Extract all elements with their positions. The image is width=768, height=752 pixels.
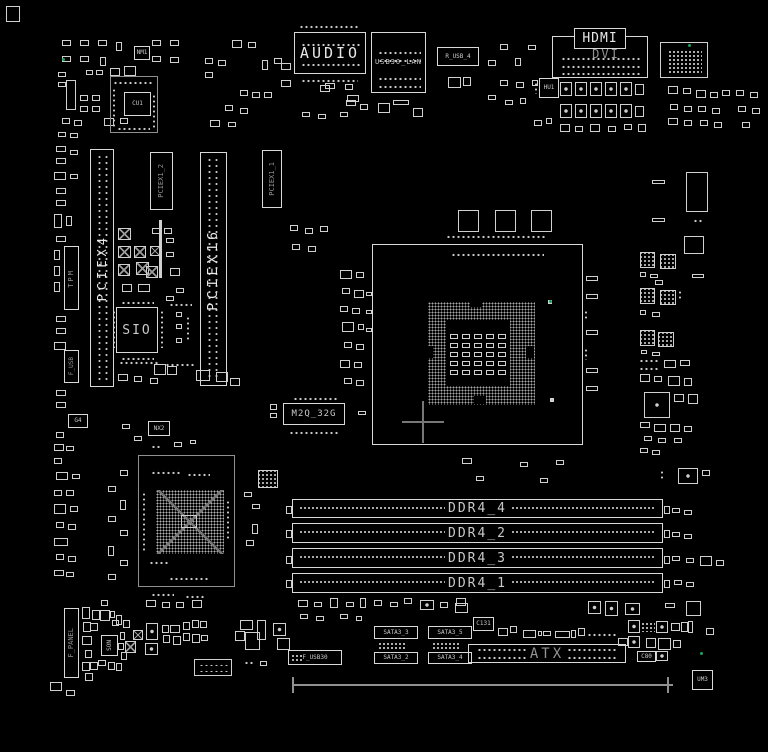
component-pad: [712, 108, 720, 114]
component-pad: [121, 652, 127, 660]
component-pad: [183, 633, 190, 641]
component-pad: [122, 424, 130, 429]
component-pad: [264, 92, 272, 98]
component-pad: [330, 598, 338, 608]
component-pad: [116, 126, 150, 130]
component-pad: [56, 390, 66, 396]
component-pad: [112, 88, 116, 128]
component-pad: [198, 669, 228, 672]
component-pad: [640, 374, 650, 382]
component-pad: [194, 659, 232, 676]
component-pad: [534, 120, 542, 126]
component-pad: [54, 458, 62, 464]
component-pad: [118, 246, 131, 258]
component-pad: [686, 558, 694, 563]
component-pad: [66, 690, 75, 696]
pciex1-2-slot[interactable]: PCIEX1_2: [150, 152, 173, 210]
component-pad: [92, 610, 100, 620]
component-pad: [98, 660, 106, 666]
component-pad: [346, 100, 356, 106]
c80-component[interactable]: C80: [637, 651, 656, 662]
component-pad: [686, 172, 708, 212]
component-pad: [118, 360, 158, 365]
component-pad: [240, 108, 248, 114]
component-pad: [176, 338, 182, 343]
component-pad: [176, 602, 184, 608]
component-pad: [235, 631, 245, 641]
component-pad: [456, 598, 466, 606]
component-pad: [167, 366, 177, 375]
component-pad: [116, 42, 122, 51]
rear-usb-connector[interactable]: R_USB_4: [437, 47, 479, 66]
component-pad: [684, 106, 692, 112]
pciex4-slot[interactable]: PCIEX4: [90, 149, 114, 387]
c131-component[interactable]: C131: [473, 617, 494, 631]
component-pad: [654, 376, 662, 382]
component-pad: [54, 538, 68, 546]
component-pad: [134, 436, 142, 441]
component-pad: [252, 504, 260, 509]
component-pad: [200, 621, 207, 628]
component-pad: [183, 622, 190, 630]
component-pad: [316, 616, 324, 621]
component-pad: [560, 104, 572, 118]
component-pad: [560, 82, 572, 96]
component-pad: [150, 444, 160, 448]
sata-port-5[interactable]: SATA3_5: [428, 626, 472, 639]
component-pad: [345, 84, 353, 90]
component-pad: [54, 282, 60, 292]
component-pad: [340, 614, 348, 619]
component-pad: [166, 296, 174, 301]
component-pad: [54, 490, 62, 496]
component-pad: [644, 436, 652, 441]
component-pad: [555, 631, 570, 638]
component-pad: [300, 614, 308, 619]
component-pad: [635, 106, 644, 117]
nm1-chip[interactable]: NM1: [134, 46, 150, 60]
component-pad: [664, 360, 676, 368]
component-pad: [98, 40, 107, 46]
dimm-slot-ddr4-4[interactable]: DDR4_4: [292, 499, 663, 518]
component-pad: [270, 413, 277, 418]
dimm-label: DDR4_4: [445, 502, 510, 515]
component-pad: [344, 378, 352, 384]
component-pad: [281, 63, 291, 70]
component-pad: [404, 598, 412, 604]
component-pad: [56, 432, 64, 438]
component-pad: [116, 663, 122, 671]
component-pad: [290, 225, 298, 231]
component-pad: [588, 601, 601, 614]
g4-chip[interactable]: G4: [68, 414, 88, 428]
component-pad: [652, 180, 665, 184]
component-pad: [262, 60, 268, 70]
component-pad: [314, 602, 322, 607]
component-pad: [390, 602, 398, 607]
component-pad: [325, 83, 335, 89]
component-pad: [620, 82, 632, 96]
component-pad: [628, 636, 640, 648]
component-pad: [684, 120, 692, 126]
component-pad: [56, 554, 64, 560]
component-pad: [146, 623, 158, 640]
cpu-socket[interactable]: [372, 244, 583, 445]
component-pad: [667, 677, 669, 693]
component-pad: [116, 615, 122, 625]
component-pad: [463, 77, 471, 86]
component-pad: [124, 66, 136, 76]
component-pad: [205, 72, 213, 78]
component-pad: [240, 620, 253, 630]
pciex16-slot[interactable]: PCIEX16: [200, 152, 227, 386]
component-pad: [190, 440, 196, 444]
component-pad: [590, 124, 600, 132]
g4-label: G4: [74, 418, 81, 424]
component-pad: [56, 158, 66, 164]
component-pad: [500, 80, 508, 86]
component-pad: [152, 94, 156, 128]
component-pad: [625, 603, 640, 615]
component-pad: [455, 603, 468, 613]
component-pad: [641, 622, 655, 632]
component-pad: [650, 274, 658, 278]
son-label: SON: [107, 640, 113, 651]
component-pad: [664, 556, 670, 564]
component-pad: [476, 476, 484, 481]
f-panel-label: F_PANEL: [68, 628, 75, 658]
component-pad: [257, 620, 266, 640]
component-pad: [176, 312, 182, 317]
component-pad: [134, 376, 142, 382]
component-pad: [586, 386, 598, 391]
component-pad: [516, 82, 524, 88]
pciex1-2-label: PCIEX1_2: [158, 164, 165, 198]
component-pad: [578, 628, 585, 636]
component-pad: [346, 602, 354, 607]
component-pad: [258, 470, 278, 488]
component-pad: [515, 58, 521, 66]
component-pad: [176, 324, 182, 329]
component-pad: [54, 250, 60, 260]
component-pad: [638, 124, 646, 132]
component-pad: [248, 42, 256, 48]
atx-power-connector[interactable]: ATX: [468, 644, 626, 663]
component-pad: [138, 284, 150, 292]
chipset[interactable]: [138, 455, 235, 587]
component-pad: [201, 635, 208, 641]
component-pad: [298, 24, 360, 29]
component-pad: [66, 216, 72, 226]
component-pad: [54, 570, 64, 576]
component-pad: [292, 677, 294, 693]
audio-connector[interactable]: AUDIO: [294, 32, 366, 74]
component-pad: [354, 362, 362, 368]
component-pad: [86, 70, 93, 75]
component-pad: [656, 651, 668, 661]
dimm-label: DDR4_2: [445, 527, 510, 540]
component-pad: [80, 106, 88, 112]
component-pad: [458, 210, 479, 232]
component-pad: [674, 438, 682, 443]
cu1-label: CU1: [132, 101, 143, 107]
component-pad: [320, 226, 328, 232]
component-pad: [85, 673, 93, 681]
component-pad: [358, 411, 366, 415]
component-pad: [605, 104, 617, 118]
component-pad: [638, 366, 660, 370]
nm1-label: NM1: [137, 50, 148, 56]
component-pad: [640, 310, 646, 315]
component-pad: [270, 404, 277, 410]
component-pad: [134, 246, 146, 258]
component-pad: [56, 472, 68, 480]
pciex4-label: PCIEX4: [96, 234, 108, 301]
component-pad: [700, 120, 708, 126]
component-pad: [120, 500, 126, 510]
component-pad: [133, 630, 143, 640]
sata-port-2[interactable]: SATA3_2: [374, 652, 418, 664]
dvi-label: DVI: [584, 46, 628, 62]
component-pad: [145, 643, 158, 655]
component-pad: [164, 228, 172, 234]
component-pad: [505, 100, 513, 105]
hu1-chip[interactable]: HU1: [539, 78, 559, 98]
component-pad: [112, 620, 119, 626]
component-pad: [586, 330, 598, 335]
component-pad: [184, 594, 204, 598]
component-pad: [225, 105, 233, 111]
component-pad: [670, 104, 678, 110]
chipset-bga-grid: [156, 490, 224, 554]
c80-label: C80: [641, 654, 652, 660]
sata-label: SATA3_4: [437, 655, 462, 661]
component-pad: [668, 50, 702, 74]
component-pad: [586, 632, 618, 637]
component-pad: [590, 104, 602, 118]
nx2-chip[interactable]: NX2: [148, 421, 170, 436]
component-pad: [670, 424, 680, 432]
tpm-header[interactable]: TPM: [64, 246, 79, 310]
component-pad: [605, 601, 618, 616]
component-pad: [590, 82, 602, 96]
component-pad: [688, 394, 698, 404]
component-pad: [318, 114, 326, 119]
component-pad: [692, 218, 702, 224]
component-pad: [560, 124, 570, 132]
component-pad: [120, 470, 128, 476]
component-pad: [273, 623, 286, 636]
component-pad: [72, 474, 80, 479]
component-pad: [192, 620, 199, 628]
component-pad: [520, 98, 526, 104]
component-pad: [413, 108, 423, 117]
component-pad: [154, 364, 166, 375]
component-pad: [420, 600, 434, 610]
f-panel-header[interactable]: F_PANEL: [64, 608, 79, 678]
component-pad: [146, 600, 156, 607]
m2-connector[interactable]: M2Q_32G: [283, 403, 345, 425]
component-pad: [342, 322, 354, 332]
component-pad: [112, 80, 152, 84]
component-pad: [320, 85, 330, 92]
component-pad: [608, 126, 616, 132]
cpu-pin-grid: [428, 302, 535, 405]
component-pad: [652, 312, 660, 317]
component-pad: [252, 92, 260, 98]
component-pad: [360, 598, 366, 608]
son-chip[interactable]: SON: [101, 635, 118, 656]
component-pad: [672, 532, 680, 537]
component-pad: [152, 228, 160, 234]
component-pad: [56, 402, 66, 408]
component-pad: [125, 641, 136, 653]
component-pad: [660, 470, 664, 480]
component-pad: [488, 95, 496, 100]
sata-port-4[interactable]: SATA3_4: [428, 652, 472, 664]
component-pad: [664, 530, 670, 538]
sata-label: SATA3_3: [383, 630, 408, 636]
component-pad: [680, 360, 690, 366]
component-pad: [340, 270, 352, 279]
component-pad: [80, 56, 89, 62]
component-pad: [668, 376, 680, 386]
dimm-label: DDR4_1: [445, 577, 510, 590]
component-pad: [56, 328, 66, 334]
component-pad: [150, 592, 174, 596]
component-pad: [108, 486, 116, 492]
component-pad: [640, 288, 655, 304]
component-pad: [556, 460, 564, 465]
f-usb30-header[interactable]: F_USB30: [288, 650, 342, 665]
component-pad: [360, 104, 368, 110]
component-pad: [108, 516, 116, 522]
component-pad: [260, 661, 267, 666]
component-pad: [356, 616, 362, 621]
component-pad: [722, 90, 730, 96]
dimm-slot-ddr4-1[interactable]: DDR4_1: [292, 573, 663, 593]
component-pad: [352, 308, 360, 314]
component-pad: [96, 70, 103, 75]
component-pad: [628, 620, 640, 633]
component-pad: [531, 210, 552, 232]
component-pad: [575, 126, 583, 132]
component-pad: [678, 468, 698, 484]
component-pad: [56, 236, 66, 242]
component-pad: [710, 92, 718, 98]
component-pad: [50, 682, 62, 691]
component-pad: [54, 342, 66, 350]
component-pad: [684, 510, 692, 515]
component-pad: [586, 276, 598, 281]
component-pad: [68, 524, 76, 530]
component-pad: [80, 95, 88, 101]
component-pad: [684, 426, 692, 432]
component-pad: [62, 56, 71, 62]
component-pad: [159, 220, 162, 278]
component-pad: [162, 602, 170, 608]
sata-label: SATA3_5: [437, 630, 462, 636]
component-pad: [495, 210, 516, 232]
component-pad: [500, 44, 508, 50]
sio-chip[interactable]: SIO: [116, 307, 158, 353]
lan-usb-label: USB30_LAN: [375, 59, 422, 66]
component-pad: [70, 150, 78, 155]
um3-chip[interactable]: UM3: [692, 670, 713, 690]
atx-label: ATX: [527, 647, 567, 661]
dimm-slot-ddr4-2[interactable]: DDR4_2: [292, 523, 663, 543]
component-pad: [546, 118, 552, 124]
component-pad: [340, 112, 348, 117]
component-pad: [166, 238, 174, 243]
f-usb-label: F_USB: [69, 357, 75, 375]
component-pad: [354, 290, 364, 298]
component-pad: [300, 78, 358, 83]
component-pad: [498, 628, 508, 636]
dimm-slot-ddr4-3[interactable]: DDR4_3: [292, 548, 663, 568]
component-pad: [605, 82, 617, 96]
sata-port-3[interactable]: SATA3_3: [374, 626, 418, 639]
component-pad: [152, 40, 161, 46]
component-pad: [571, 630, 576, 638]
cu1-audio-codec[interactable]: CU1: [124, 92, 151, 116]
component-pad: [54, 266, 60, 276]
component-pad: [277, 638, 290, 650]
component-pad: [108, 662, 115, 670]
component-pad: [58, 72, 66, 77]
component-pad: [640, 448, 648, 453]
component-pad: [62, 118, 70, 124]
component-pad: [640, 272, 646, 277]
component-pad: [118, 264, 130, 276]
component-pad: [714, 122, 722, 128]
component-pad: [624, 124, 632, 130]
component-pad: [308, 246, 316, 252]
component-pad: [120, 560, 128, 566]
component-pad: [90, 662, 98, 670]
component-pad: [584, 310, 588, 320]
component-pad: [686, 582, 694, 587]
component-pad: [252, 524, 258, 534]
component-pad: [696, 90, 706, 98]
component-pad: [340, 360, 350, 368]
component-pad: [104, 118, 114, 126]
component-pad: [658, 332, 674, 347]
component-pad: [120, 118, 128, 124]
component-pad: [674, 394, 684, 402]
component-pad: [543, 631, 551, 636]
component-pad: [160, 310, 164, 348]
pciex1-1-slot[interactable]: PCIEX1_1: [262, 150, 282, 208]
component-pad: [120, 530, 128, 536]
component-pad: [6, 6, 20, 22]
lan-usb-connector[interactable]: USB30_LAN: [371, 32, 426, 93]
component-pad: [586, 294, 598, 299]
component-pad: [660, 290, 676, 305]
component-pad: [686, 601, 701, 616]
component-pad: [56, 522, 64, 528]
component-pad: [170, 625, 180, 633]
f-usb-header[interactable]: F_USB: [64, 350, 79, 383]
component-pad: [122, 284, 132, 292]
component-pad: [668, 118, 678, 125]
component-pad: [150, 246, 160, 256]
component-pad: [641, 350, 647, 354]
component-pad: [92, 106, 100, 112]
component-pad: [520, 462, 528, 467]
component-pad: [684, 236, 704, 254]
component-pad: [192, 634, 200, 643]
